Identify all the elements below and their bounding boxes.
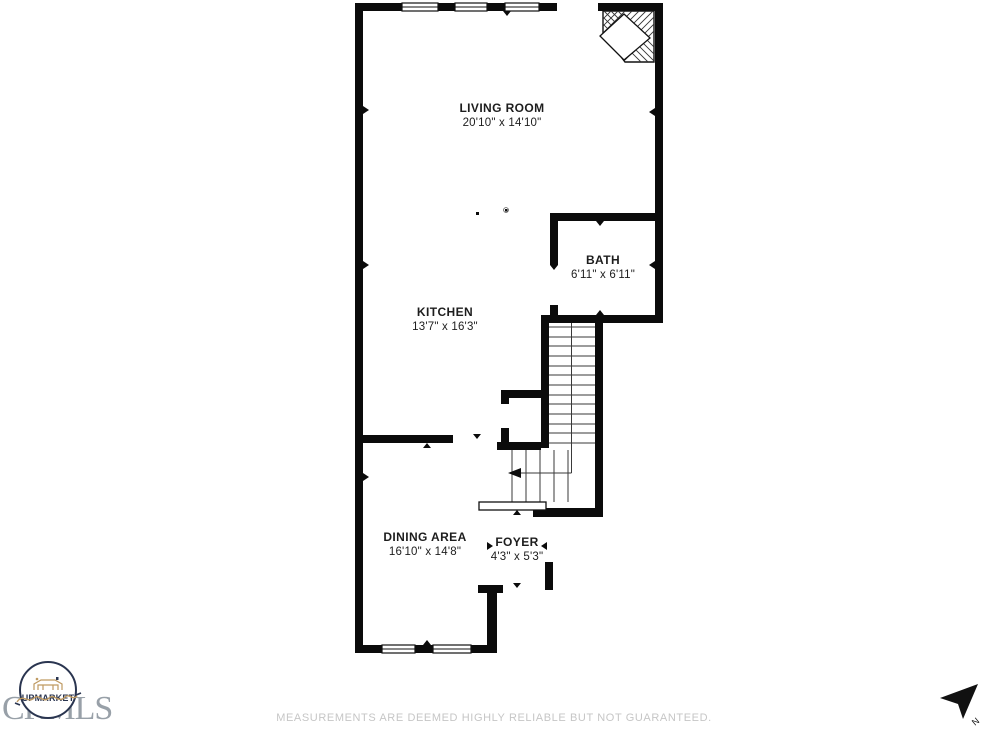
window-icon — [382, 645, 415, 653]
room-dimensions: 20'10" x 14'10" — [432, 116, 572, 131]
room-name: LIVING ROOM — [432, 101, 572, 116]
room-dimensions: 4'3" x 5'3" — [462, 550, 572, 565]
window-icon — [505, 3, 539, 11]
room-name: KITCHEN — [375, 305, 515, 320]
room-label-kitchen: KITCHEN 13'7" x 16'3" — [375, 305, 515, 335]
staircase — [479, 323, 595, 510]
room-label-living-room: LIVING ROOM 20'10" x 14'10" — [432, 101, 572, 131]
room-name: FOYER — [462, 535, 572, 550]
logo-script-flourish-icon — [13, 691, 83, 707]
disclaimer-text: MEASUREMENTS ARE DEEMED HIGHLY RELIABLE … — [0, 712, 988, 724]
window-icon — [433, 645, 471, 653]
room-name: BATH — [548, 253, 658, 268]
north-arrow-icon: N — [930, 672, 988, 732]
room-label-bath: BATH 6'11" x 6'11" — [548, 253, 658, 283]
stair-direction-arrow-icon — [508, 468, 521, 478]
room-dimensions: 6'11" x 6'11" — [548, 268, 658, 283]
floor-plan-page: LIVING ROOM 20'10" x 14'10" BATH 6'11" x… — [0, 0, 988, 734]
window-icon — [402, 3, 438, 11]
room-label-foyer: FOYER 4'3" x 5'3" — [462, 535, 572, 565]
room-dimensions: 13'7" x 16'3" — [375, 320, 515, 335]
house-icon — [31, 677, 65, 692]
upmarket-logo: UPMARKET — [19, 661, 77, 719]
window-icon — [455, 3, 487, 11]
stair-landing-step — [479, 502, 546, 510]
north-label: N — [970, 716, 981, 728]
